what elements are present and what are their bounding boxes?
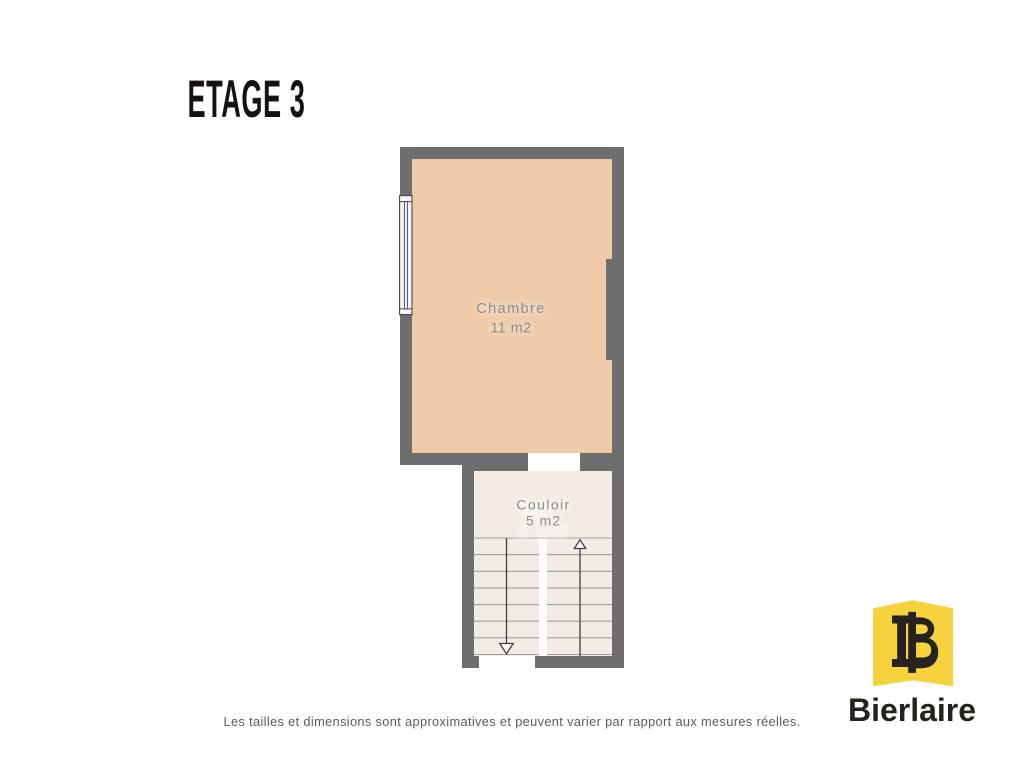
svg-text:Les tailles et dimensions sont: Les tailles et dimensions sont approxima… <box>223 714 800 729</box>
svg-text:Couloir: Couloir <box>516 497 570 513</box>
svg-text:5 m2: 5 m2 <box>526 513 561 529</box>
svg-text:Bierlaire: Bierlaire <box>848 692 976 728</box>
svg-text:Chambre: Chambre <box>476 301 545 317</box>
svg-text:ETAGE 3: ETAGE 3 <box>188 69 306 128</box>
svg-text:11 m2: 11 m2 <box>490 321 531 337</box>
